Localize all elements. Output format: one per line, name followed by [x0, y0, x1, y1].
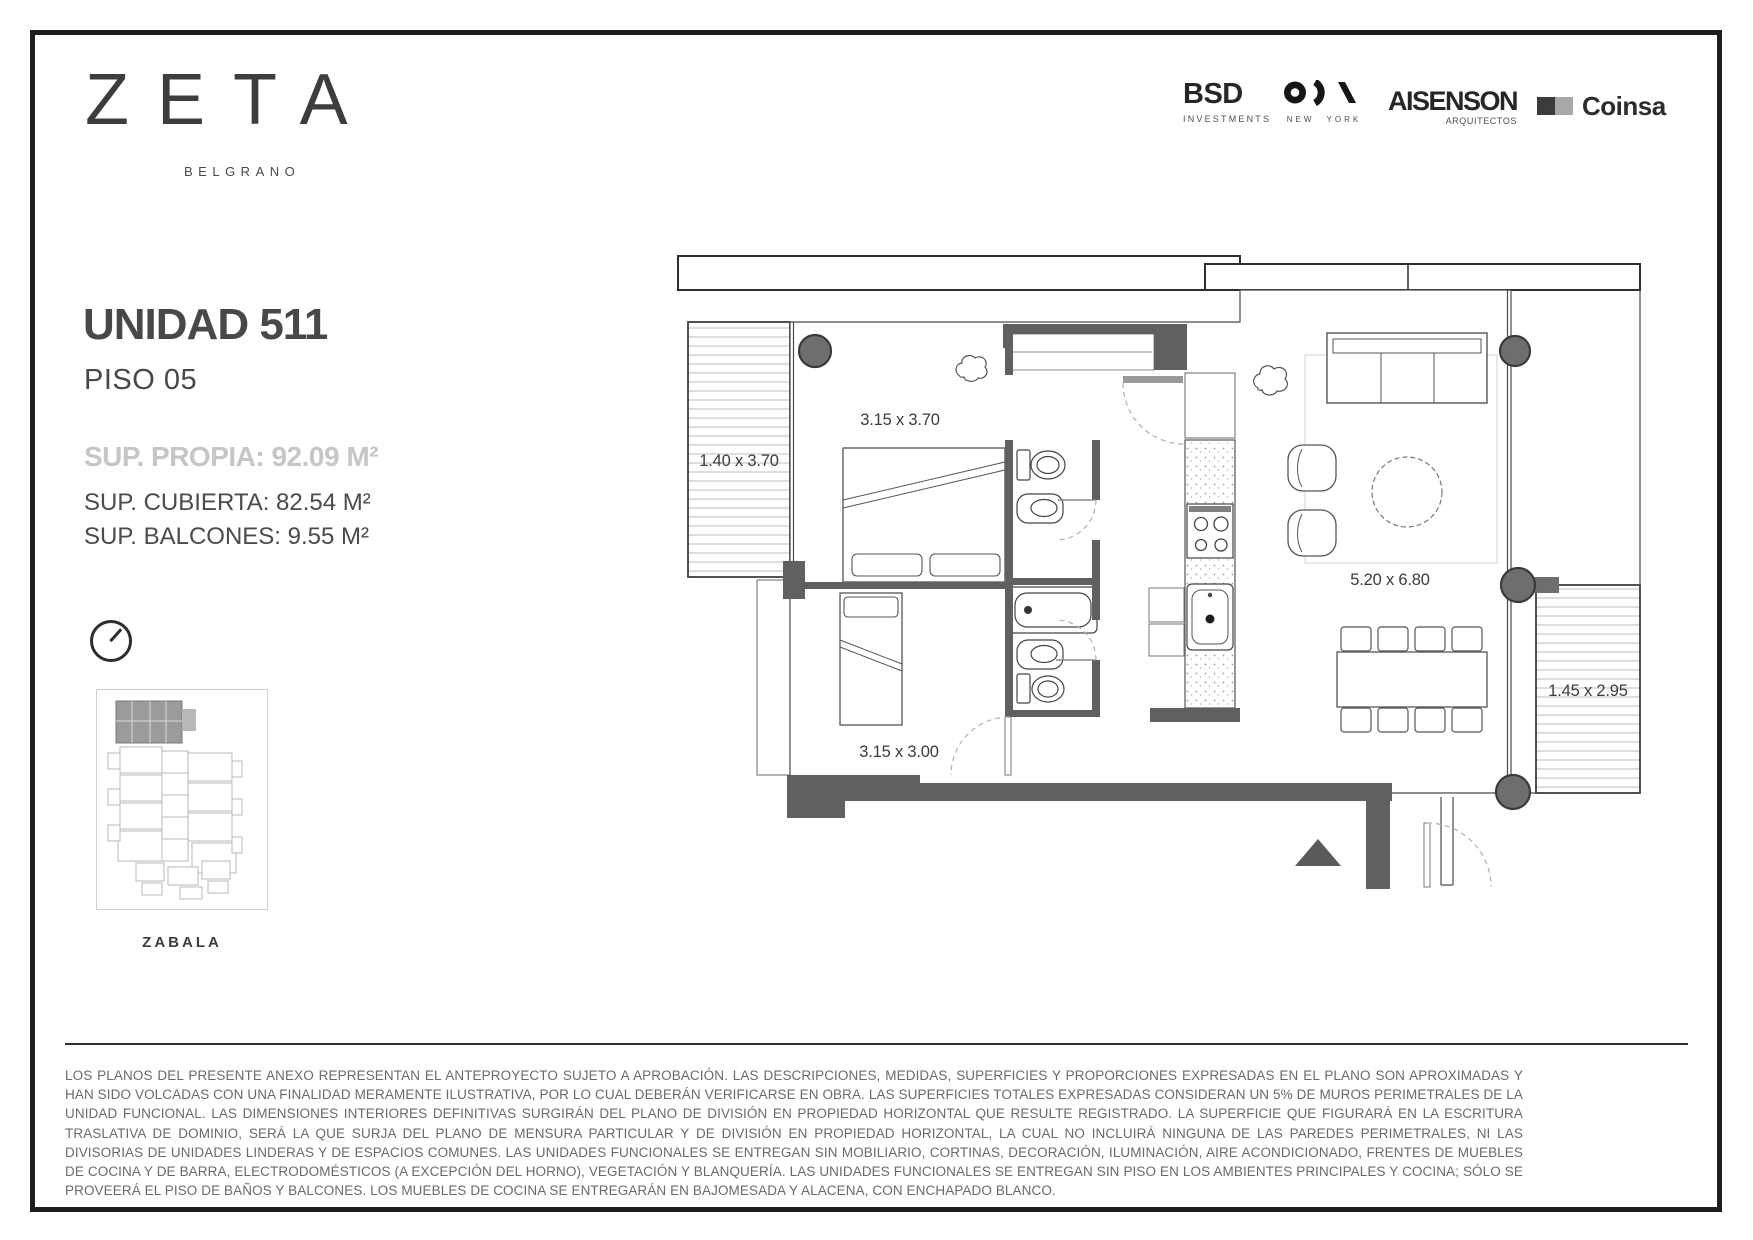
closet: [1011, 334, 1154, 370]
logo-oda: NEW YORK: [1282, 80, 1366, 124]
round-table: [1372, 457, 1442, 527]
kitchen-sink: [1187, 584, 1233, 650]
oda-tagline: NEW YORK: [1282, 115, 1366, 124]
coinsa-name: Coinsa: [1582, 93, 1666, 119]
sofa: [1327, 333, 1487, 403]
dim-bedroom-main: 3.15 x 3.70: [860, 411, 939, 429]
legal-disclaimer-text: LOS PLANOS DEL PRESENTE ANEXO REPRESENTA…: [65, 1066, 1523, 1200]
entry-arrow-icon: [1295, 839, 1341, 866]
unit-area-balconies: SUP. BALCONES: 9.55 M²: [84, 523, 369, 551]
unit-title: UNIDAD 511: [83, 300, 327, 350]
logo-aisenson: AISENSON ARQUITECTOS: [1388, 88, 1517, 126]
aisenson-name: AISENSON: [1388, 88, 1517, 115]
footer-divider: [65, 1043, 1688, 1045]
coinsa-gray-square-icon: [1555, 97, 1573, 115]
balcony-left: [688, 322, 790, 577]
coinsa-dark-square-icon: [1537, 97, 1555, 115]
logo-coinsa: Coinsa: [1537, 93, 1666, 119]
bsd-name: BSD: [1183, 80, 1271, 109]
key-plan-street-label: ZABALA: [96, 934, 268, 951]
bsd-tagline: INVESTMENTS: [1183, 114, 1271, 124]
main-bedroom-bed: [843, 448, 1005, 582]
aisenson-tagline: ARQUITECTOS: [1388, 116, 1517, 126]
floor-plan-drawing: 1.40 x 3.70 3.15 x 3.70 5.20 x 6.80 3.15…: [600, 248, 1670, 913]
brand-location-label: BELGRANO: [184, 164, 300, 179]
dim-balcony-right: 1.45 x 2.95: [1548, 682, 1627, 700]
unit-floor-label: PISO 05: [84, 364, 197, 397]
stove: [1187, 504, 1233, 558]
second-bedroom-bed: [840, 593, 902, 725]
north-compass-icon: [90, 620, 132, 662]
logo-bsd: BSD INVESTMENTS: [1183, 80, 1271, 124]
dim-bedroom-second: 3.15 x 3.00: [859, 743, 938, 761]
compass-needle: [109, 628, 122, 642]
unit-area-covered: SUP. CUBIERTA: 82.54 M²: [84, 489, 371, 517]
unit-area-own: SUP. PROPIA: 92.09 M²: [84, 441, 378, 473]
dim-living: 5.20 x 6.80: [1350, 571, 1429, 589]
oda-monogram-icon: [1282, 80, 1366, 106]
dim-balcony-left: 1.40 x 3.70: [699, 452, 778, 470]
parapet-walls: [678, 256, 1640, 290]
building-key-plan: [96, 689, 268, 910]
brand-logo-zeta: ZETA: [85, 64, 376, 136]
